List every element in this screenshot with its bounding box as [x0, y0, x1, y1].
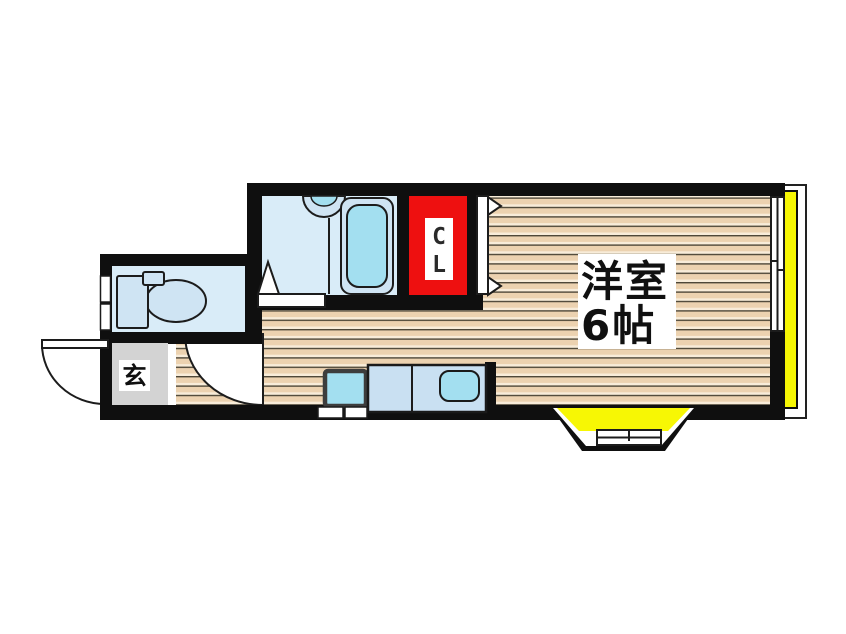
kitchen: [318, 365, 486, 418]
toilet-room: [112, 266, 245, 332]
wall-bath-closet-divider: [397, 183, 409, 310]
genkan-label: 玄: [123, 362, 147, 390]
wall-toilet-top: [100, 254, 252, 266]
wall-vent-2: [345, 407, 367, 418]
toilet-window-pane-1: [101, 276, 111, 302]
wall-toilet-entrance-divider: [100, 332, 252, 344]
main-room-size: 6帖: [581, 301, 656, 350]
closet-label-c: C: [432, 224, 446, 250]
bay-window: [549, 405, 698, 451]
wall-top: [252, 183, 783, 196]
floor-plan-page: 玄 C L 洋室 6帖: [0, 0, 846, 634]
balcony-strip: [784, 191, 797, 408]
bay-window-sill: [557, 408, 690, 431]
closet: C L: [409, 196, 501, 295]
bathroom-door-threshold: [258, 294, 325, 307]
main-room: 洋室 6帖: [578, 254, 676, 350]
stove: [325, 371, 366, 406]
entrance-door-swing: [42, 344, 105, 404]
wall-vent-1: [318, 407, 343, 418]
closet-label-l: L: [432, 252, 446, 278]
genkan-step: [168, 344, 176, 405]
entrance-door-leaf: [42, 340, 108, 348]
main-room-name: 洋室: [581, 257, 669, 306]
toilet-window-pane-2: [101, 304, 111, 330]
bathroom: [258, 196, 397, 307]
toilet-bowl: [146, 280, 206, 322]
floor-plan-drawing: 玄 C L 洋室 6帖: [0, 0, 846, 634]
closet-door: [477, 196, 488, 294]
bathtub: [347, 205, 387, 287]
toilet-flush-button: [143, 272, 164, 285]
kitchen-sink: [440, 371, 479, 401]
right-window: [771, 197, 784, 331]
